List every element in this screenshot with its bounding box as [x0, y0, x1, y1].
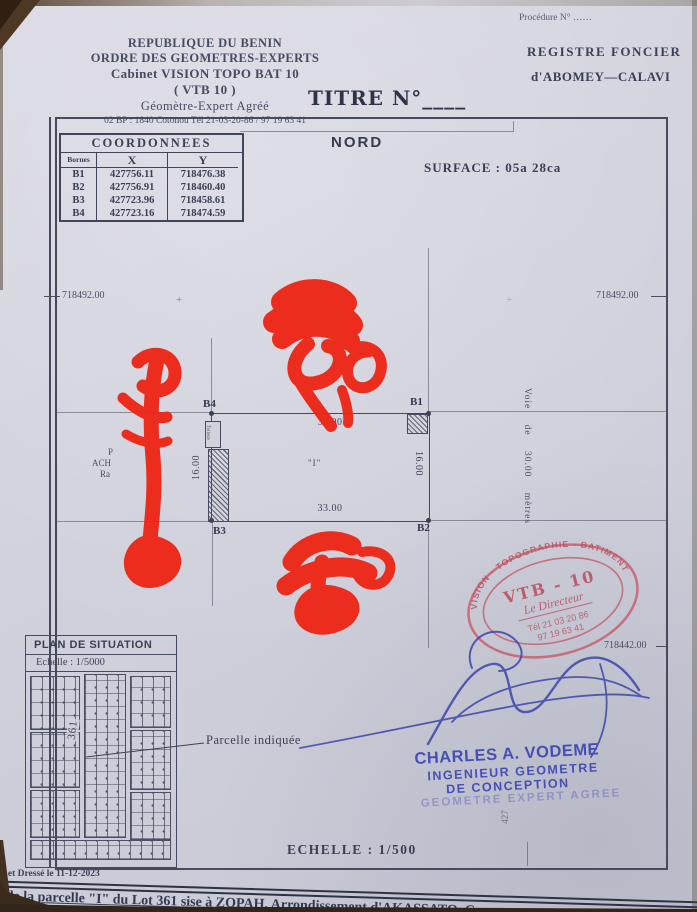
table-cell: 718476.38	[167, 168, 238, 181]
table-cell: 427723.96	[96, 194, 167, 207]
building-hatched	[208, 449, 229, 522]
parcel-callout-label: Parcelle indiquée	[206, 733, 301, 748]
col-header-y: Y	[167, 153, 238, 168]
toilette-structure: Toilette	[205, 421, 221, 448]
corner-label-b2: B2	[417, 522, 430, 534]
lot-block	[30, 790, 80, 838]
table-cell: 718458.61	[167, 194, 238, 207]
lot-block	[130, 792, 171, 840]
letterhead-line: Cabinet VISION TOPO BAT 10	[52, 66, 358, 82]
situation-map: 361	[26, 672, 173, 865]
photo-edge-top	[0, 0, 697, 6]
dimension-right: 16.00	[413, 451, 424, 476]
table-cell: 427723.16	[96, 207, 167, 220]
corner-marker	[209, 411, 214, 416]
surface-label: SURFACE : 05a 28ca	[424, 160, 561, 176]
situation-scale: Echelle : 1/5000	[26, 655, 176, 672]
situation-title: PLAN DE SITUATION	[26, 636, 176, 655]
building-hatched	[407, 414, 428, 434]
scanned-survey-document: REPUBLIQUE DU BENIN ORDRE DES GEOMETRES-…	[0, 0, 697, 912]
dimension-top: 33.00	[305, 417, 355, 428]
grid-cross: +	[176, 294, 182, 306]
coordinates-grid: Bornes X Y B1 427756.11 718476.38 B2 427…	[61, 153, 242, 220]
lot-block	[30, 840, 171, 860]
dimension-left: 16.00	[191, 455, 202, 480]
document-title: TITRE N°____	[308, 86, 466, 110]
lot-block	[84, 674, 126, 838]
coordinates-table: COORDONNEES Bornes X Y B1 427756.11 7184…	[59, 133, 244, 222]
table-cell: B1	[61, 168, 96, 181]
neighbor-text-fragment: ACH	[92, 458, 111, 468]
table-cell: B2	[61, 181, 96, 194]
table-cell: B4	[61, 207, 96, 220]
table-cell: B3	[61, 194, 96, 207]
toilette-label: Toilette	[205, 425, 210, 440]
corner-label-b4: B4	[203, 398, 216, 410]
procedure-number: Procédure N° ……	[519, 13, 592, 23]
road-label: Voie de 30.00 mètres	[522, 388, 532, 522]
corner-label-b1: B1	[410, 396, 423, 408]
table-cell: 427756.11	[96, 168, 167, 181]
neighbor-text-fragment: Ra	[100, 469, 110, 479]
letterhead-line: ORDRE DES GEOMETRES-EXPERTS	[52, 51, 358, 66]
lot-block	[130, 730, 171, 790]
photo-edge-right	[692, 0, 697, 912]
letterhead-line: REPUBLIQUE DU BENIN	[52, 36, 358, 51]
table-cell: 427756.91	[96, 181, 167, 194]
registre-foncier-label: REGISTRE FONCIER	[527, 44, 681, 60]
letterhead: REPUBLIQUE DU BENIN ORDRE DES GEOMETRES-…	[52, 36, 358, 126]
surveyor-stamp-text: CHARLES A. VODEME INGENIEUR GEOMETRE DE …	[414, 739, 622, 810]
neighbor-text-fragment: P	[108, 447, 113, 457]
col-header-bornes: Bornes	[61, 153, 96, 168]
dimension-bottom: 33.00	[305, 503, 355, 514]
table-cell: 718460.40	[167, 181, 238, 194]
lot-block	[130, 676, 171, 728]
col-header-x: X	[96, 153, 167, 168]
footer-drawn-date: Levé et Dressé le 11-12-2023	[0, 869, 100, 879]
north-label: NORD	[331, 134, 383, 151]
coordinates-title: COORDONNEES	[61, 135, 242, 153]
grid-cross: +	[506, 294, 512, 306]
parcel-center-label: "I"	[308, 458, 321, 468]
scale-label: ECHELLE : 1/500	[287, 842, 417, 858]
situation-plan-box: PLAN DE SITUATION Echelle : 1/5000 361	[25, 635, 177, 868]
table-cell: 718474.59	[167, 207, 238, 220]
photo-edge-left	[0, 40, 3, 290]
easting-label-partial: 427	[500, 810, 510, 824]
registre-location: d'ABOMEY—CALAVI	[531, 69, 670, 85]
corner-label-b3: B3	[213, 525, 226, 537]
